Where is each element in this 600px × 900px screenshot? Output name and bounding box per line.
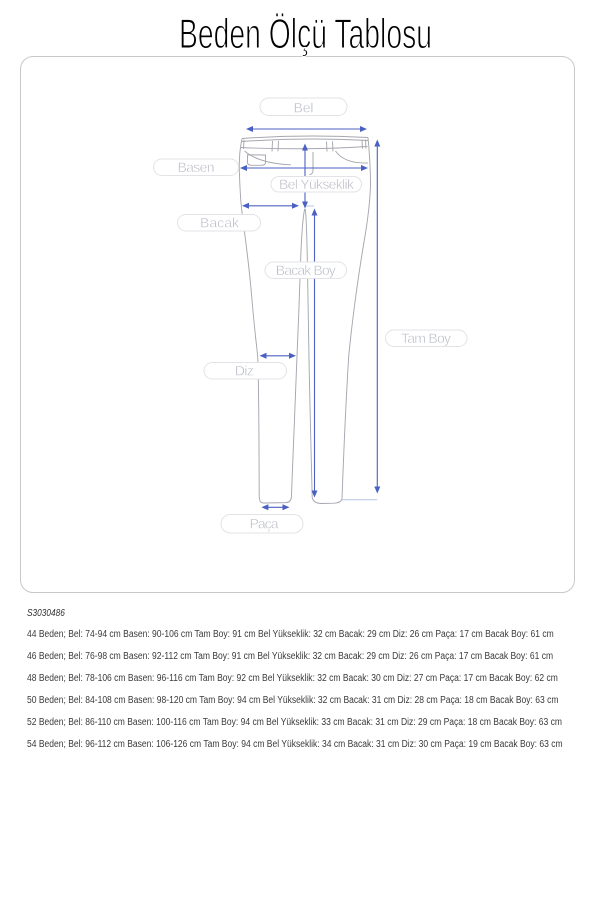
svg-text:Tam Boy: Tam Boy — [401, 330, 451, 346]
svg-text:Paça: Paça — [250, 515, 279, 531]
svg-text:Bacak: Bacak — [200, 214, 240, 230]
svg-text:Bel Yükseklik: Bel Yükseklik — [279, 176, 355, 192]
svg-text:Diz: Diz — [235, 362, 254, 378]
svg-text:Bel: Bel — [294, 100, 314, 116]
svg-text:Beden Ölçü Tablosu: Beden Ölçü Tablosu — [179, 10, 432, 57]
svg-text:Basen: Basen — [178, 159, 215, 175]
svg-text:Bacak Boy: Bacak Boy — [276, 262, 336, 278]
